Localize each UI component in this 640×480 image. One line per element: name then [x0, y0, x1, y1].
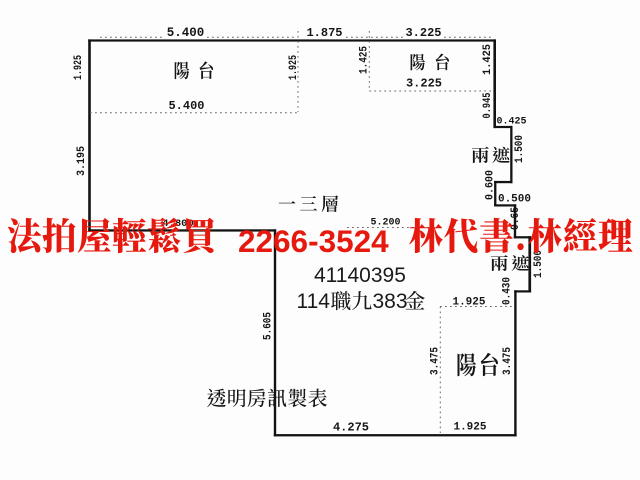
svg-text:0.425: 0.425 [496, 117, 526, 128]
svg-text:5.400: 5.400 [168, 99, 204, 113]
svg-text:1.875: 1.875 [306, 26, 342, 40]
svg-text:0.945: 0.945 [482, 92, 494, 118]
svg-text:0.500: 0.500 [498, 194, 531, 206]
svg-text:1.925: 1.925 [288, 55, 300, 80]
svg-text:1.925: 1.925 [73, 55, 85, 80]
svg-text:3.225: 3.225 [405, 26, 441, 40]
svg-text:1.500: 1.500 [514, 135, 526, 163]
svg-text:1.425: 1.425 [359, 46, 371, 74]
svg-text:41140395: 41140395 [314, 264, 406, 287]
svg-text:1.500: 1.500 [533, 250, 545, 278]
svg-text:2266-3524: 2266-3524 [238, 223, 389, 259]
svg-text:114: 114 [297, 290, 331, 313]
svg-text:5.400: 5.400 [167, 26, 205, 40]
svg-text:4.275: 4.275 [333, 421, 369, 435]
svg-text:3.195: 3.195 [76, 146, 88, 176]
svg-text:1.925: 1.925 [452, 297, 485, 309]
svg-text:3.475: 3.475 [430, 347, 442, 375]
svg-text:5.605: 5.605 [263, 312, 275, 340]
svg-text:1.425: 1.425 [482, 44, 494, 75]
svg-text:383: 383 [373, 290, 408, 313]
svg-text:3.475: 3.475 [502, 347, 514, 375]
svg-text:0.600: 0.600 [485, 170, 497, 200]
svg-text:3.225: 3.225 [406, 77, 442, 91]
svg-text:0.430: 0.430 [502, 277, 514, 305]
svg-text:1.925: 1.925 [453, 422, 486, 434]
